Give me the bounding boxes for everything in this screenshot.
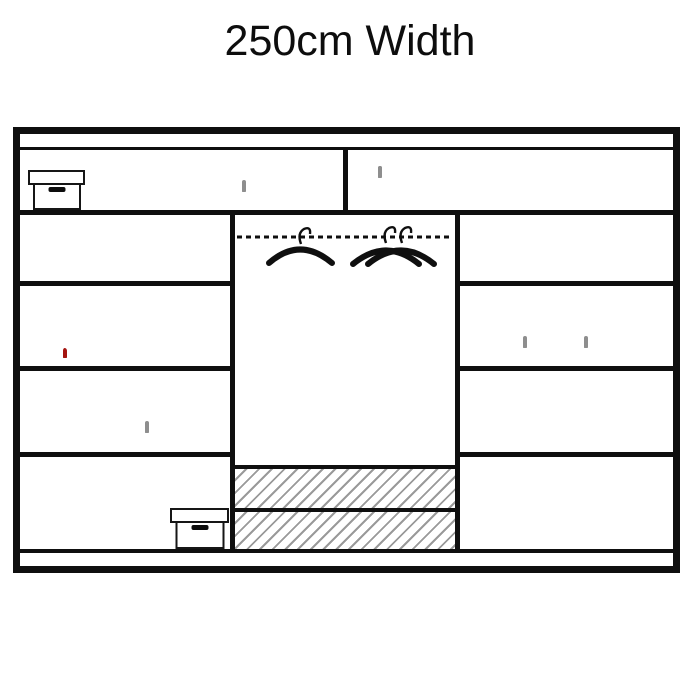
storage-box-icon: [28, 170, 85, 210]
top-row-divider: [343, 150, 348, 210]
left-shelf-1: [20, 281, 230, 286]
folded-towel-icon: [145, 423, 207, 453]
drawer-front-upper: [235, 469, 455, 508]
wardrobe-diagram: 250cm Width: [0, 0, 700, 700]
right-shelf-2: [460, 366, 673, 371]
box-handle-slot: [48, 187, 65, 192]
diagram-title: 250cm Width: [0, 14, 700, 68]
folded-towel-icon: [242, 182, 302, 211]
top-shelf-board: [20, 210, 673, 215]
left-shelf-2: [20, 366, 230, 371]
right-shelf-3: [460, 452, 673, 457]
clothes-hanger-pair-icon: [353, 227, 434, 264]
box-handle-slot: [191, 525, 208, 530]
clothes-hanger-icon: [269, 228, 332, 263]
wardrobe-frame: [13, 127, 680, 573]
folded-towel-icon: [584, 338, 643, 366]
right-partition: [455, 215, 460, 549]
folded-towel-icon: [523, 338, 580, 366]
folded-towel-icon: [378, 168, 437, 211]
drawer-front-lower: [235, 512, 455, 549]
red-folded-towel-icon: [63, 348, 123, 366]
right-shelf-1: [460, 281, 673, 286]
storage-box-icon: [170, 508, 229, 549]
base-plinth: [20, 553, 673, 566]
